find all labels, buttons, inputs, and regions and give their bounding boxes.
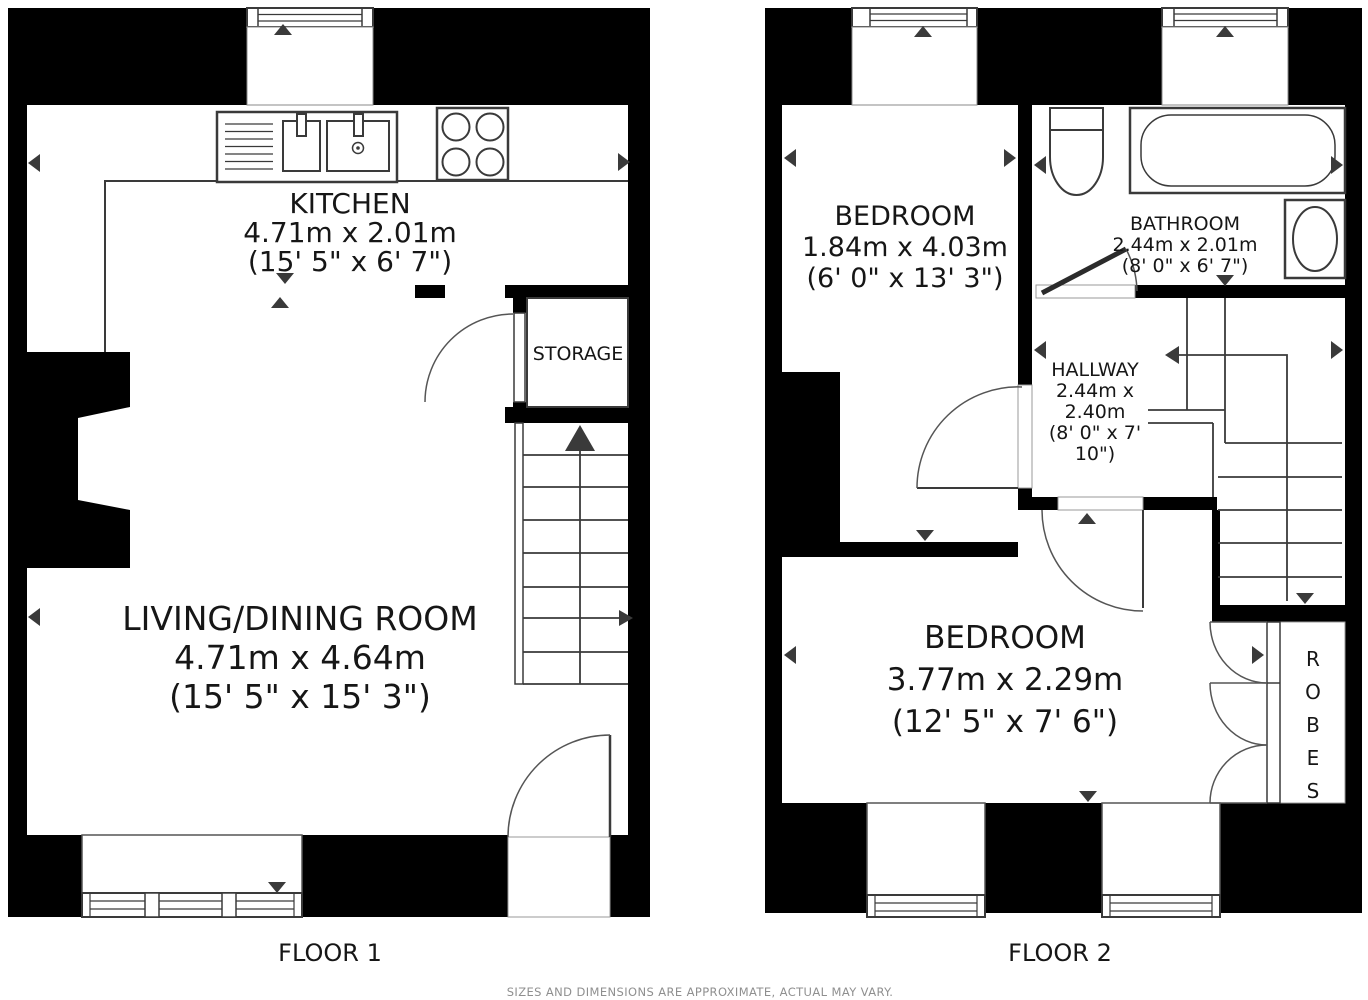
robes-door-swing: [1210, 683, 1267, 745]
window-f1-top: [247, 8, 373, 105]
robes-letter: E: [1305, 742, 1321, 775]
room-dim-imperial: (6' 0" x 13' 3"): [802, 263, 1008, 294]
window-f2-bottom-1: [867, 803, 985, 917]
room-dim-metric: 2.44m x 2.01m: [1113, 235, 1258, 256]
wall-right: [628, 105, 650, 835]
marker-left-icon: [28, 608, 40, 626]
storage-wall-top: [505, 285, 650, 298]
storage-door-leaf: [514, 313, 525, 402]
window-recess: [1162, 27, 1288, 105]
tap-left: [297, 114, 306, 136]
stair-winder-lines: [1187, 298, 1225, 443]
window-f2-top-2: [1162, 8, 1288, 105]
robes-letter: S: [1305, 775, 1321, 808]
storage-wall-bottom: [505, 407, 650, 423]
door-opening: [1058, 497, 1143, 510]
wall-right: [1345, 105, 1362, 913]
door-swing: [917, 387, 1022, 488]
floor2-title: FLOOR 2: [1008, 939, 1112, 967]
storage-wall-stub: [415, 285, 445, 298]
wall-bottom-middle: [302, 835, 508, 917]
marker-up-icon: [271, 297, 289, 308]
room-dim-metric: 4.71m x 2.01m: [243, 218, 457, 247]
wall-below-stairs: [1212, 605, 1345, 622]
room-dim-imperial: (12' 5" x 7' 6"): [887, 701, 1124, 743]
window-f2-top-1: [852, 8, 977, 105]
marker-right-icon: [1004, 149, 1016, 167]
living-room-label: LIVING/DINING ROOM 4.71m x 4.64m (15' 5"…: [122, 599, 477, 716]
bedroom2-door: [1042, 497, 1143, 611]
marker-up-icon: [1078, 513, 1096, 524]
stair-direction-arrow: [1165, 346, 1179, 364]
robes-track: [1267, 622, 1280, 803]
robes-label: R O B E S: [1305, 643, 1321, 808]
room-dim-imperial: (15' 5" x 6' 7"): [243, 247, 457, 276]
marker-left-icon: [28, 154, 40, 172]
stair-up-arrow: [565, 425, 595, 451]
window-f1-bay: [82, 835, 302, 917]
window-f2-bottom-2: [1102, 803, 1220, 917]
robes-wardrobe: [1210, 622, 1345, 803]
wall-left: [8, 105, 27, 835]
storage-door-jamb-top: [513, 298, 527, 313]
wall-bed1-bottom: [840, 542, 1018, 557]
stair-treads: [523, 455, 628, 684]
wall-left: [765, 105, 782, 913]
wall-top-a: [765, 8, 852, 105]
wall-bed1-divider-stub: [1018, 488, 1032, 510]
fireplace-opening: [78, 407, 130, 510]
room-name: HALLWAY: [1049, 360, 1141, 381]
door-opening: [508, 837, 610, 917]
storage-label: STORAGE: [533, 344, 623, 364]
wall-top-b: [977, 8, 1162, 105]
wall-bottom-left: [8, 835, 82, 917]
wall-bathroom-bottom: [1130, 285, 1345, 298]
stair-treads: [1218, 443, 1342, 577]
room-name: BEDROOM: [802, 201, 1008, 232]
wall-bed2-bottom-mid: [985, 803, 1102, 913]
storage-door-swing: [425, 314, 513, 402]
robes-letter: O: [1305, 676, 1321, 709]
marker-left-icon: [784, 646, 796, 664]
bedroom2-label: BEDROOM 3.77m x 2.29m (12' 5" x 7' 6"): [887, 617, 1124, 743]
room-name: STORAGE: [533, 344, 623, 364]
robes-door-swing: [1210, 745, 1267, 803]
stair-stringer: [515, 423, 523, 684]
wall-bottom-right: [610, 835, 650, 917]
marker-right-icon: [1252, 646, 1264, 664]
wall-bed1-step: [782, 372, 840, 557]
toilet-cistern: [1050, 108, 1103, 130]
wall-bed1-divider: [1018, 105, 1032, 385]
marker-left-icon: [1034, 156, 1046, 174]
window-recess: [82, 835, 302, 893]
room-dim-metric: 3.77m x 2.29m: [887, 659, 1124, 701]
door-swing: [1042, 510, 1143, 611]
marker-down-icon: [1079, 791, 1097, 802]
marker-right-icon: [1331, 341, 1343, 359]
wall-below-robes: [1220, 803, 1345, 913]
floor1-title: FLOOR 1: [278, 939, 382, 967]
window-recess: [247, 27, 373, 105]
marker-down-icon: [916, 530, 934, 541]
stair-direction-line: [1179, 355, 1287, 601]
room-dim: 2.40m: [1049, 402, 1141, 423]
room-name: KITCHEN: [243, 189, 457, 218]
bathtub: [1130, 108, 1345, 193]
kitchen-label: KITCHEN 4.71m x 2.01m (15' 5" x 6' 7"): [243, 189, 457, 276]
room-dim: 2.44m x: [1049, 381, 1141, 402]
stair-landing-edge: [1148, 410, 1225, 497]
hallway-label: HALLWAY 2.44m x 2.40m (8' 0" x 7' 10"): [1049, 360, 1141, 465]
wash-basin: [1285, 200, 1345, 278]
wall-stair-divider: [1212, 510, 1220, 605]
entry-door: [508, 735, 610, 917]
robes-letter: B: [1305, 709, 1321, 742]
marker-left-icon: [1034, 341, 1046, 359]
robes-door-leaf: [1210, 622, 1267, 803]
wall-top-right: [373, 8, 650, 105]
floorplan-canvas: KITCHEN 4.71m x 2.01m (15' 5" x 6' 7") S…: [0, 0, 1368, 1000]
disclaimer-text: SIZES AND DIMENSIONS ARE APPROXIMATE, AC…: [507, 985, 894, 999]
wall-top-left: [8, 8, 247, 105]
bedroom1-label: BEDROOM 1.84m x 4.03m (6' 0" x 13' 3"): [802, 201, 1008, 294]
stairs-floor1: [515, 423, 633, 684]
room-name: BATHROOM: [1113, 214, 1258, 235]
marker-left-icon: [784, 149, 796, 167]
door-opening: [1018, 385, 1032, 488]
kitchen-hob: [437, 108, 508, 180]
bedroom1-door: [917, 385, 1032, 488]
window-recess: [1102, 803, 1220, 895]
toilet: [1050, 108, 1103, 195]
door-swing: [508, 735, 610, 837]
wall-hall-bottom-left: [1032, 497, 1058, 510]
window-recess: [867, 803, 985, 895]
stairs-floor2: [1148, 298, 1342, 604]
room-dim-metric: 1.84m x 4.03m: [802, 232, 1008, 263]
room-name: LIVING/DINING ROOM: [122, 599, 477, 638]
wall-bed2-bottom-left: [782, 803, 867, 913]
wall-top-c: [1288, 8, 1362, 105]
bathroom-label: BATHROOM 2.44m x 2.01m (8' 0" x 6' 7"): [1113, 214, 1258, 277]
toilet-bowl: [1050, 130, 1103, 195]
wall-hall-bottom-right: [1143, 497, 1217, 510]
room-dim-metric: 4.71m x 4.64m: [122, 638, 477, 677]
room-dim-imperial: (8' 0" x 6' 7"): [1113, 256, 1258, 277]
room-dim: 10"): [1049, 444, 1141, 465]
room-name: BEDROOM: [887, 617, 1124, 659]
window-recess: [852, 27, 977, 105]
floorplan-drawing: [0, 0, 1368, 1000]
room-dim: (8' 0" x 7': [1049, 423, 1141, 444]
tap-right: [354, 114, 363, 136]
kitchen-sink-unit: [217, 112, 397, 182]
robes-letter: R: [1305, 643, 1321, 676]
room-dim-imperial: (15' 5" x 15' 3"): [122, 677, 477, 716]
marker-down-icon: [1296, 593, 1314, 604]
